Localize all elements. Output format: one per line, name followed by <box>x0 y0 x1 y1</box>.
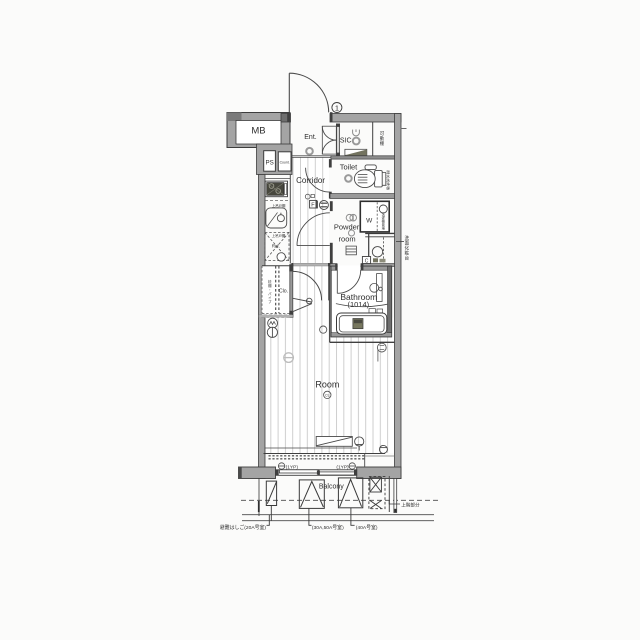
svg-text:W: W <box>366 218 373 225</box>
svg-text:上階部分: 上階部分 <box>401 501 420 508</box>
svg-text:Count.: Count. <box>280 160 290 164</box>
svg-text:PS: PS <box>265 159 273 166</box>
svg-text:CL: CL <box>325 393 329 397</box>
svg-text:(30A,50A号室): (30A,50A号室) <box>312 524 344 531</box>
svg-text:Room: Room <box>315 380 339 390</box>
svg-text:便: 便 <box>386 186 390 191</box>
svg-text:上吊戸棚: 上吊戸棚 <box>272 203 286 208</box>
svg-text:SIC: SIC <box>340 137 352 144</box>
svg-text:(1014): (1014) <box>347 300 369 309</box>
svg-text:Clo.: Clo. <box>279 289 288 295</box>
svg-text:1: 1 <box>335 103 339 112</box>
svg-text:台: 台 <box>404 255 409 262</box>
svg-text:MB: MB <box>251 126 265 137</box>
svg-text:(40A号室): (40A号室) <box>356 524 378 531</box>
svg-text:Ent.: Ent. <box>304 134 317 141</box>
svg-text:Ref.: Ref. <box>272 243 280 248</box>
svg-text:Balcony: Balcony <box>319 483 344 490</box>
svg-text:避難はしご(20A号室): 避難はしご(20A号室) <box>220 524 267 531</box>
svg-text:棚: 棚 <box>380 140 385 147</box>
svg-text:上吊戸棚: 上吊戸棚 <box>272 233 286 238</box>
svg-text:Powder: Powder <box>334 223 360 232</box>
svg-text:Corridor: Corridor <box>296 176 325 185</box>
svg-text:Toilet: Toilet <box>340 163 358 172</box>
